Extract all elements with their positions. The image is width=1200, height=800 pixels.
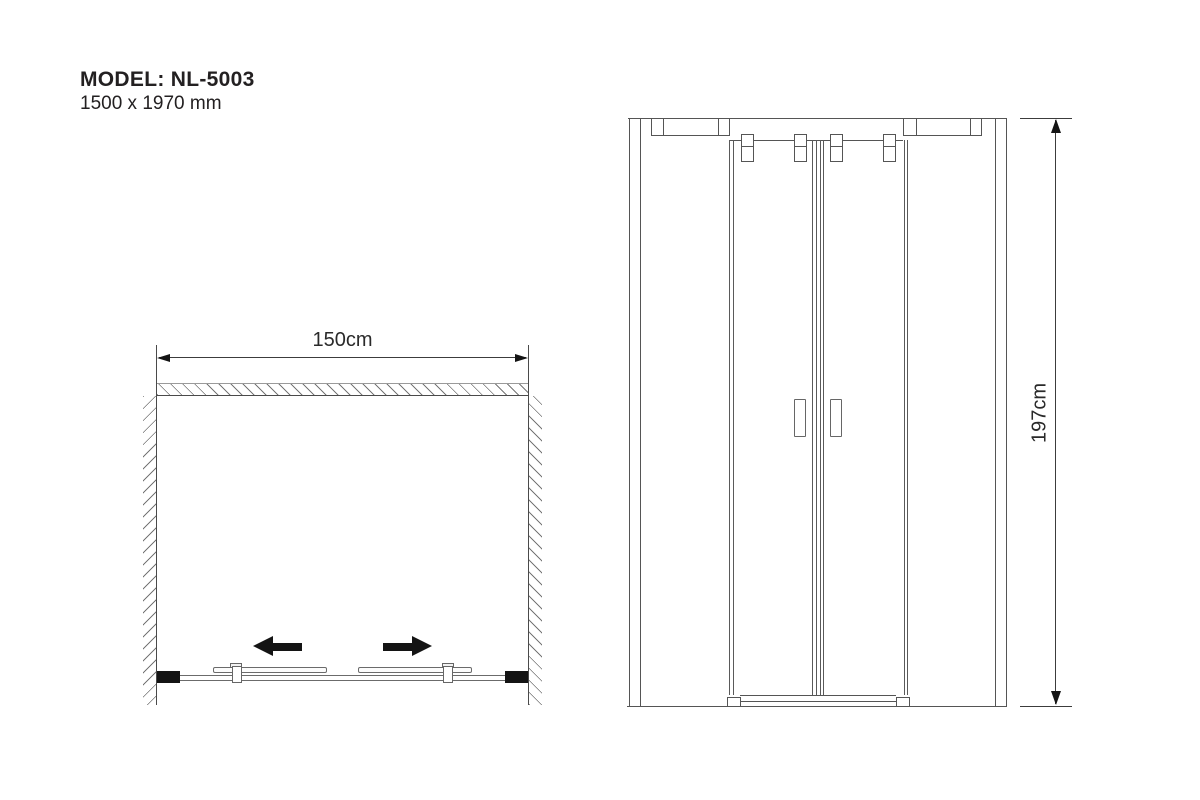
right-wall-profile-inner: [995, 118, 996, 706]
left-door-center-edge-inner: [812, 140, 813, 695]
roller-bracket-1: [741, 134, 754, 162]
elevation-bottom-line: [627, 706, 1007, 707]
plan-right-roller-clip: [443, 666, 453, 683]
left-door-outer-edge-inner: [733, 140, 734, 695]
right-door-outer-edge: [907, 140, 908, 695]
left-door-outer-edge: [729, 140, 730, 695]
plan-width-label: 150cm: [157, 329, 528, 352]
left-wall-profile-outer: [629, 118, 630, 706]
height-dim-tick-top: [1020, 118, 1072, 119]
model-title: MODEL: NL-5003: [80, 68, 255, 92]
slide-left-arrow-icon: [253, 636, 302, 657]
roller-bracket-2: [794, 134, 807, 162]
plan-right-wall-mount: [505, 671, 528, 683]
bottom-rail: [740, 695, 896, 703]
elevation-height-label: 197cm: [1028, 370, 1052, 456]
model-dimensions: 1500 x 1970 mm: [80, 93, 222, 115]
roller-bracket-3: [830, 134, 843, 162]
height-dim-tick-bottom: [1020, 706, 1072, 707]
dimension-arrow-right-icon: [515, 354, 528, 362]
right-wall-profile-outer: [1006, 118, 1007, 706]
plan-right-wall-hatch: [529, 396, 542, 705]
right-door-handle: [830, 399, 842, 437]
height-dimension-line: [1055, 120, 1056, 704]
right-door-center-edge-inner: [823, 140, 824, 695]
top-track-left-bracket: [651, 118, 730, 136]
plan-right-sliding-panel: [358, 667, 472, 673]
slide-right-arrow-icon: [383, 636, 432, 657]
roller-bracket-4: [883, 134, 896, 162]
plan-left-sliding-panel: [213, 667, 327, 673]
right-door-outer-edge-inner: [904, 140, 905, 695]
dimension-arrow-left-icon: [157, 354, 170, 362]
top-track-right-bracket: [903, 118, 982, 136]
dimension-arrow-up-icon: [1051, 119, 1061, 133]
technical-drawing-canvas: MODEL: NL-5003 1500 x 1970 mm 150cm: [0, 0, 1200, 800]
bottom-guide-left: [727, 697, 741, 707]
plan-left-roller-clip: [232, 666, 242, 683]
left-wall-profile-inner: [640, 118, 641, 706]
top-track-bottom-line: [730, 140, 903, 141]
plan-dimension-line: [159, 357, 526, 358]
right-door-center-edge: [820, 140, 821, 695]
bottom-guide-right: [896, 697, 910, 707]
dimension-arrow-down-icon: [1051, 691, 1061, 705]
plan-left-wall-line: [156, 345, 157, 705]
plan-left-wall-hatch: [143, 396, 156, 705]
left-door-center-edge: [816, 140, 817, 695]
left-door-handle: [794, 399, 806, 437]
plan-left-wall-mount: [157, 671, 180, 683]
plan-track: [180, 675, 505, 681]
plan-top-wall-hatch: [157, 383, 528, 396]
